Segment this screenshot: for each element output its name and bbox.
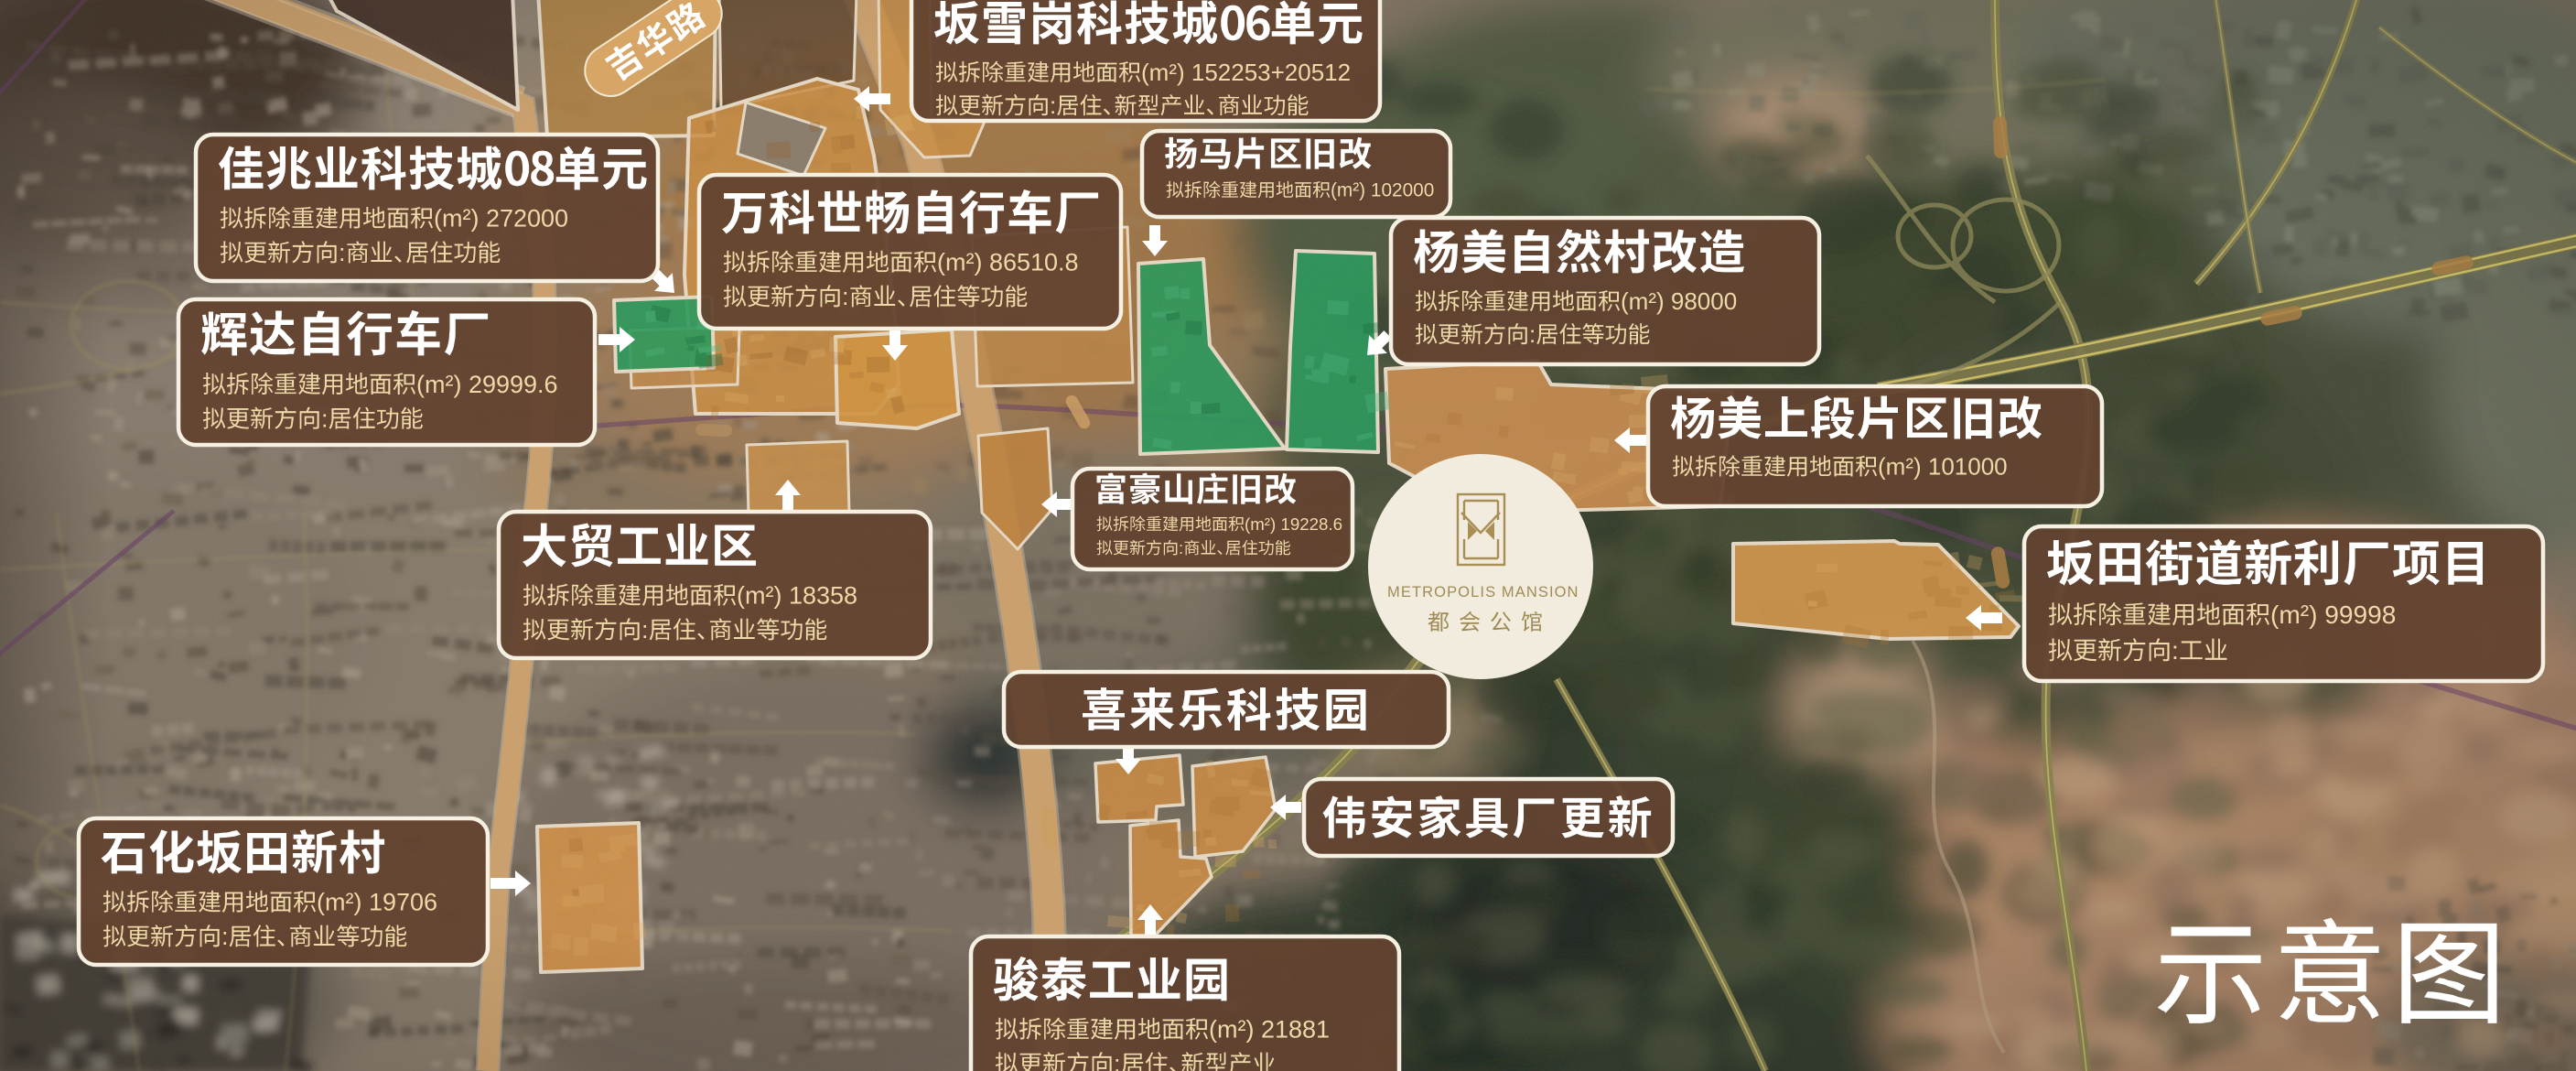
svg-text:(m²) 21881: (m²) 21881 (1209, 1016, 1330, 1044)
svg-text:(m²) 86510.8: (m²) 86510.8 (937, 249, 1079, 276)
svg-text::: : (221, 923, 229, 950)
svg-text::: : (339, 239, 346, 266)
svg-text:(m²) 98000: (m²) 98000 (1621, 287, 1737, 315)
svg-text:(m²) 272000: (m²) 272000 (434, 205, 568, 233)
svg-text::: : (1529, 320, 1536, 348)
svg-text::: : (842, 283, 849, 310)
svg-text:METROPOLIS MANSION: METROPOLIS MANSION (1387, 584, 1579, 600)
svg-text:(m²) 152253+20512: (m²) 152253+20512 (1141, 59, 1351, 86)
svg-text:(m²) 99998: (m²) 99998 (2270, 600, 2396, 629)
svg-text:(m²) 19706: (m²) 19706 (317, 889, 437, 916)
svg-text:(m²) 29999.6: (m²) 29999.6 (416, 371, 558, 398)
svg-text:(m²) 102000: (m²) 102000 (1331, 180, 1434, 201)
svg-text::: : (321, 406, 329, 433)
svg-text::: : (1114, 1050, 1121, 1071)
svg-text::: : (1179, 538, 1183, 557)
svg-text::: : (641, 616, 649, 644)
svg-text::: : (1050, 92, 1056, 119)
svg-text:(m²) 18358: (m²) 18358 (737, 582, 857, 610)
svg-text:(m²) 101000: (m²) 101000 (1878, 453, 2008, 481)
svg-text::: : (2172, 636, 2179, 665)
svg-text:(m²) 19228.6: (m²) 19228.6 (1245, 514, 1342, 534)
